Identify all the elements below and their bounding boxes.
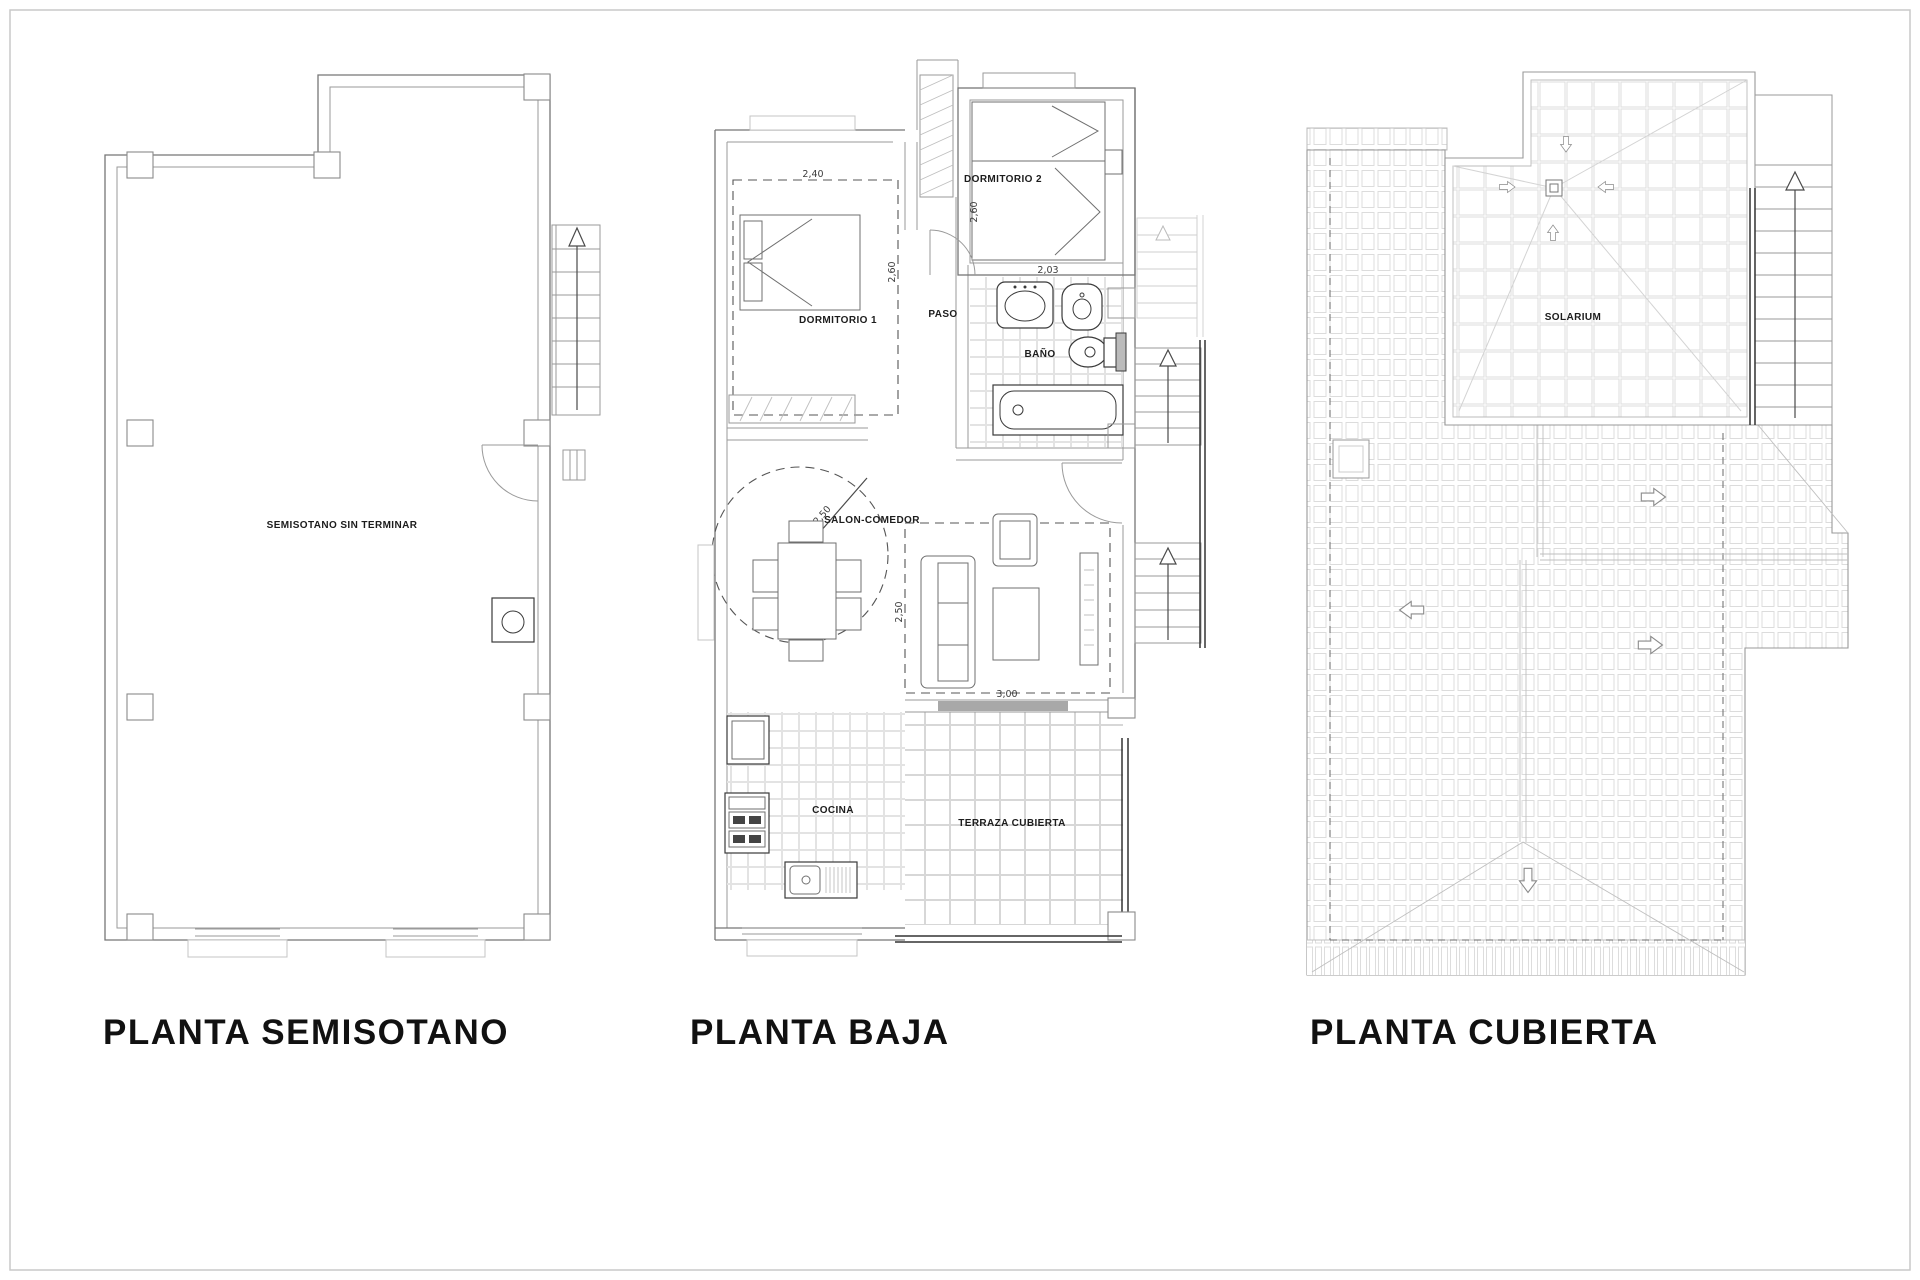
fridge (727, 716, 769, 764)
solarium-label: SOLARIUM (1545, 312, 1602, 323)
blueprint-sheet: SEMISOTANO SIN TERMINAR (0, 0, 1920, 1280)
dormitorio2-room: DORMITORIO 2 2,60 2,03 (958, 73, 1135, 276)
title-semisotano: PLANTA SEMISOTANO (103, 1013, 509, 1052)
dining-table (753, 521, 861, 661)
kitchen-sink (785, 862, 857, 898)
salon-comedor: Ø2,50 SALON-COMEDOR (698, 463, 1122, 700)
bathtub (993, 385, 1123, 435)
dormitorio1-depth-dim: 2,60 (887, 261, 898, 282)
salon-depth-dim: 2,50 (894, 601, 905, 622)
plan-baja: DORMITORIO 2 2,60 2,03 (698, 60, 1205, 956)
cocina-window (742, 928, 862, 934)
solarium: SOLARIUM (1445, 72, 1755, 425)
paso-label: PASO (928, 309, 957, 320)
semisotano-window-bottom-right (386, 929, 485, 957)
dormitorio2-label: DORMITORIO 2 (964, 174, 1042, 185)
nightstand (1105, 150, 1122, 174)
salon-width-dim: 3,00 (996, 689, 1017, 700)
tv-cabinet (1080, 553, 1098, 665)
chimney (1333, 440, 1369, 478)
semisotano-window-right (563, 450, 585, 480)
single-bed-1 (972, 102, 1105, 161)
stove (725, 793, 769, 853)
dormitorio2-window (983, 73, 1075, 88)
dormitorio1-label: DORMITORIO 1 (799, 315, 877, 326)
semisotano-window-bottom-left (188, 929, 287, 957)
bath-sink (997, 282, 1053, 328)
dormitorio1-window-sill (750, 116, 855, 130)
entry-closet-hatch (920, 75, 953, 197)
double-bed (740, 215, 860, 310)
dormitorio2-depth-dim: 2,60 (969, 201, 980, 222)
semisotano-columns (127, 74, 550, 940)
stair-up-arrow (569, 228, 585, 246)
salon-label: SALON-COMEDOR (824, 515, 920, 526)
semisotano-room-label: SEMISOTANO SIN TERMINAR (267, 520, 418, 531)
sofa (921, 556, 975, 688)
salon-window-sill (698, 545, 714, 640)
bidet (1062, 284, 1102, 330)
stair-railing (1200, 340, 1205, 648)
dormitorio1-width-dim: 2,40 (802, 169, 823, 180)
bano-label: BAÑO (1024, 347, 1055, 360)
dormitorio2-width-dim: 2,03 (1037, 265, 1058, 276)
terraza-step (938, 701, 1068, 711)
solarium-drain (1546, 180, 1562, 196)
terraza-label: TERRAZA CUBIERTA (958, 818, 1066, 829)
armchair (993, 514, 1037, 566)
cocina-label: COCINA (812, 805, 854, 816)
roof-top-eave (1307, 128, 1447, 150)
plan-semisotano: SEMISOTANO SIN TERMINAR (105, 74, 600, 957)
floorplan-drawing: SEMISOTANO SIN TERMINAR (0, 0, 1920, 1280)
cubierta-stair (1750, 95, 1832, 425)
cocina-window-sill (747, 940, 857, 956)
terraza-bottom-railing (895, 936, 1122, 942)
terraza-room: TERRAZA CUBIERTA (895, 698, 1135, 942)
dormitorio1-room: DORMITORIO 1 2,40 2,60 (729, 116, 975, 423)
coffee-table (993, 588, 1039, 660)
plan-cubierta: SOLARIUM (1307, 72, 1848, 975)
wardrobe (729, 395, 855, 423)
semisotano-walls (105, 75, 550, 940)
title-baja: PLANTA BAJA (690, 1013, 950, 1052)
bano-room: BAÑO (970, 277, 1126, 447)
title-cubierta: PLANTA CUBIERTA (1310, 1013, 1659, 1052)
boiler-appliance (492, 598, 534, 642)
entry-door (1062, 463, 1122, 523)
semisotano-door (482, 445, 538, 501)
semisotano-exterior-stair (552, 225, 600, 415)
cocina-room: COCINA (725, 712, 905, 956)
